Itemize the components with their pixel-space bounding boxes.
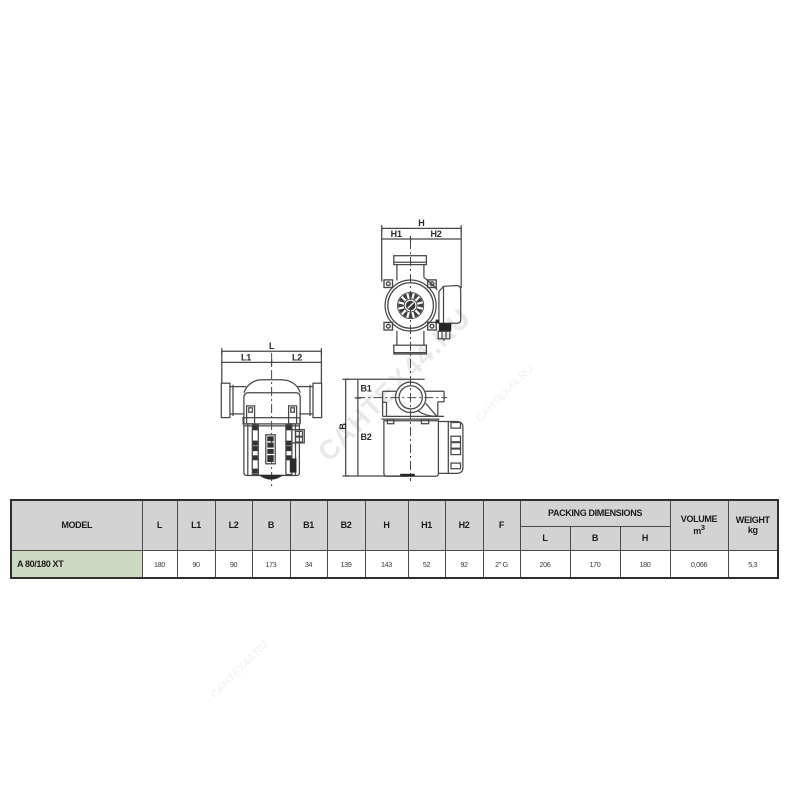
svg-text:САНТЕХ44.RU: САНТЕХ44.RU — [474, 363, 536, 425]
svg-text:B: B — [338, 423, 348, 430]
svg-text:L2: L2 — [292, 352, 302, 362]
svg-text:H: H — [418, 218, 424, 228]
svg-text:L1: L1 — [241, 352, 251, 362]
svg-text:H1: H1 — [391, 229, 402, 239]
svg-text:H2: H2 — [430, 229, 441, 239]
svg-text:L: L — [269, 341, 275, 351]
svg-text:B2: B2 — [361, 432, 372, 442]
svg-text:B1: B1 — [361, 383, 372, 393]
svg-text:САНТЕХ44.RU: САНТЕХ44.RU — [209, 639, 271, 701]
